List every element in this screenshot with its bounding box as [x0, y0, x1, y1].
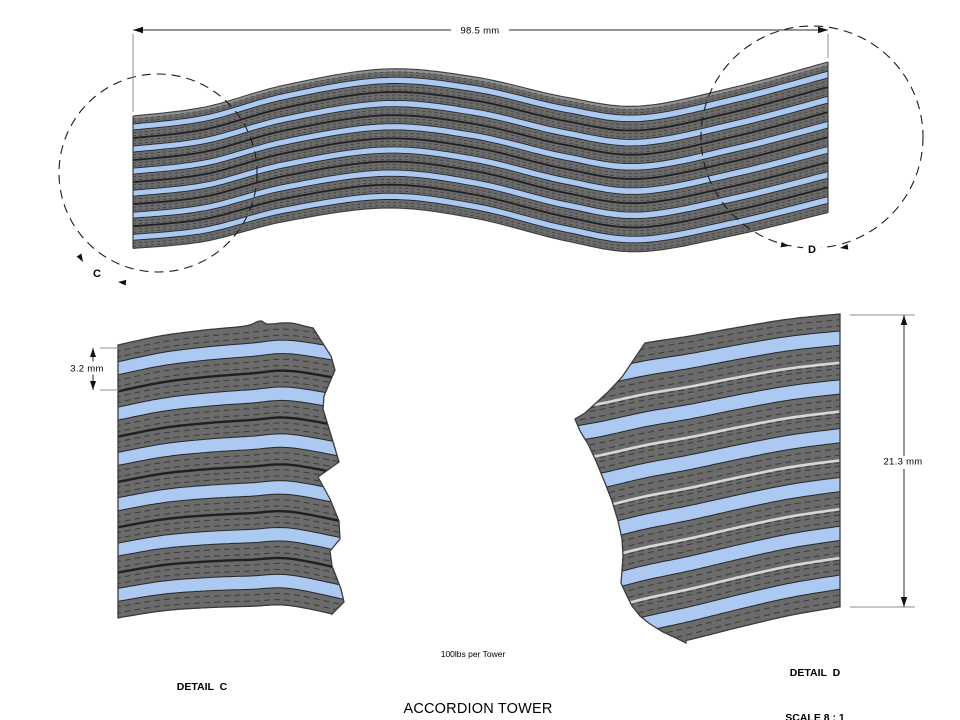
detail-c-label-block: DETAIL C SCALE 8 : 1	[172, 650, 232, 720]
detail-d-title: DETAIL D	[785, 666, 845, 681]
detail-d-scale: SCALE 8 : 1	[785, 711, 845, 720]
tower-height-dimension-text: 21.3 mm	[883, 457, 922, 468]
top-view-wavy-accordion-tower	[133, 62, 828, 252]
detail-c-title: DETAIL C	[172, 680, 232, 695]
overall-length-dimension-text: 98.5 mm	[460, 26, 499, 37]
detail-d-label-block: DETAIL D SCALE 8 : 1	[785, 636, 845, 720]
drawing-sheet: 98.5 mm 3.2 mm 21.3 mm C D DETAIL C SCAL…	[0, 0, 960, 720]
detail-d-view	[560, 304, 850, 682]
sandwich-thickness-dimension-text: 3.2 mm	[70, 364, 103, 375]
detail-d-callout-letter: D	[808, 244, 816, 256]
title-block: ACCORDION TOWER (6 ACCORDION SANDWICHES)	[370, 666, 587, 720]
drawing-title: ACCORDION TOWER	[370, 701, 587, 719]
cad-drawing: 98.5 mm 3.2 mm 21.3 mm C D	[0, 0, 960, 720]
load-note: 100lbs per Tower	[441, 649, 506, 659]
detail-c-view	[105, 313, 350, 630]
detail-c-callout-letter: C	[93, 268, 101, 280]
